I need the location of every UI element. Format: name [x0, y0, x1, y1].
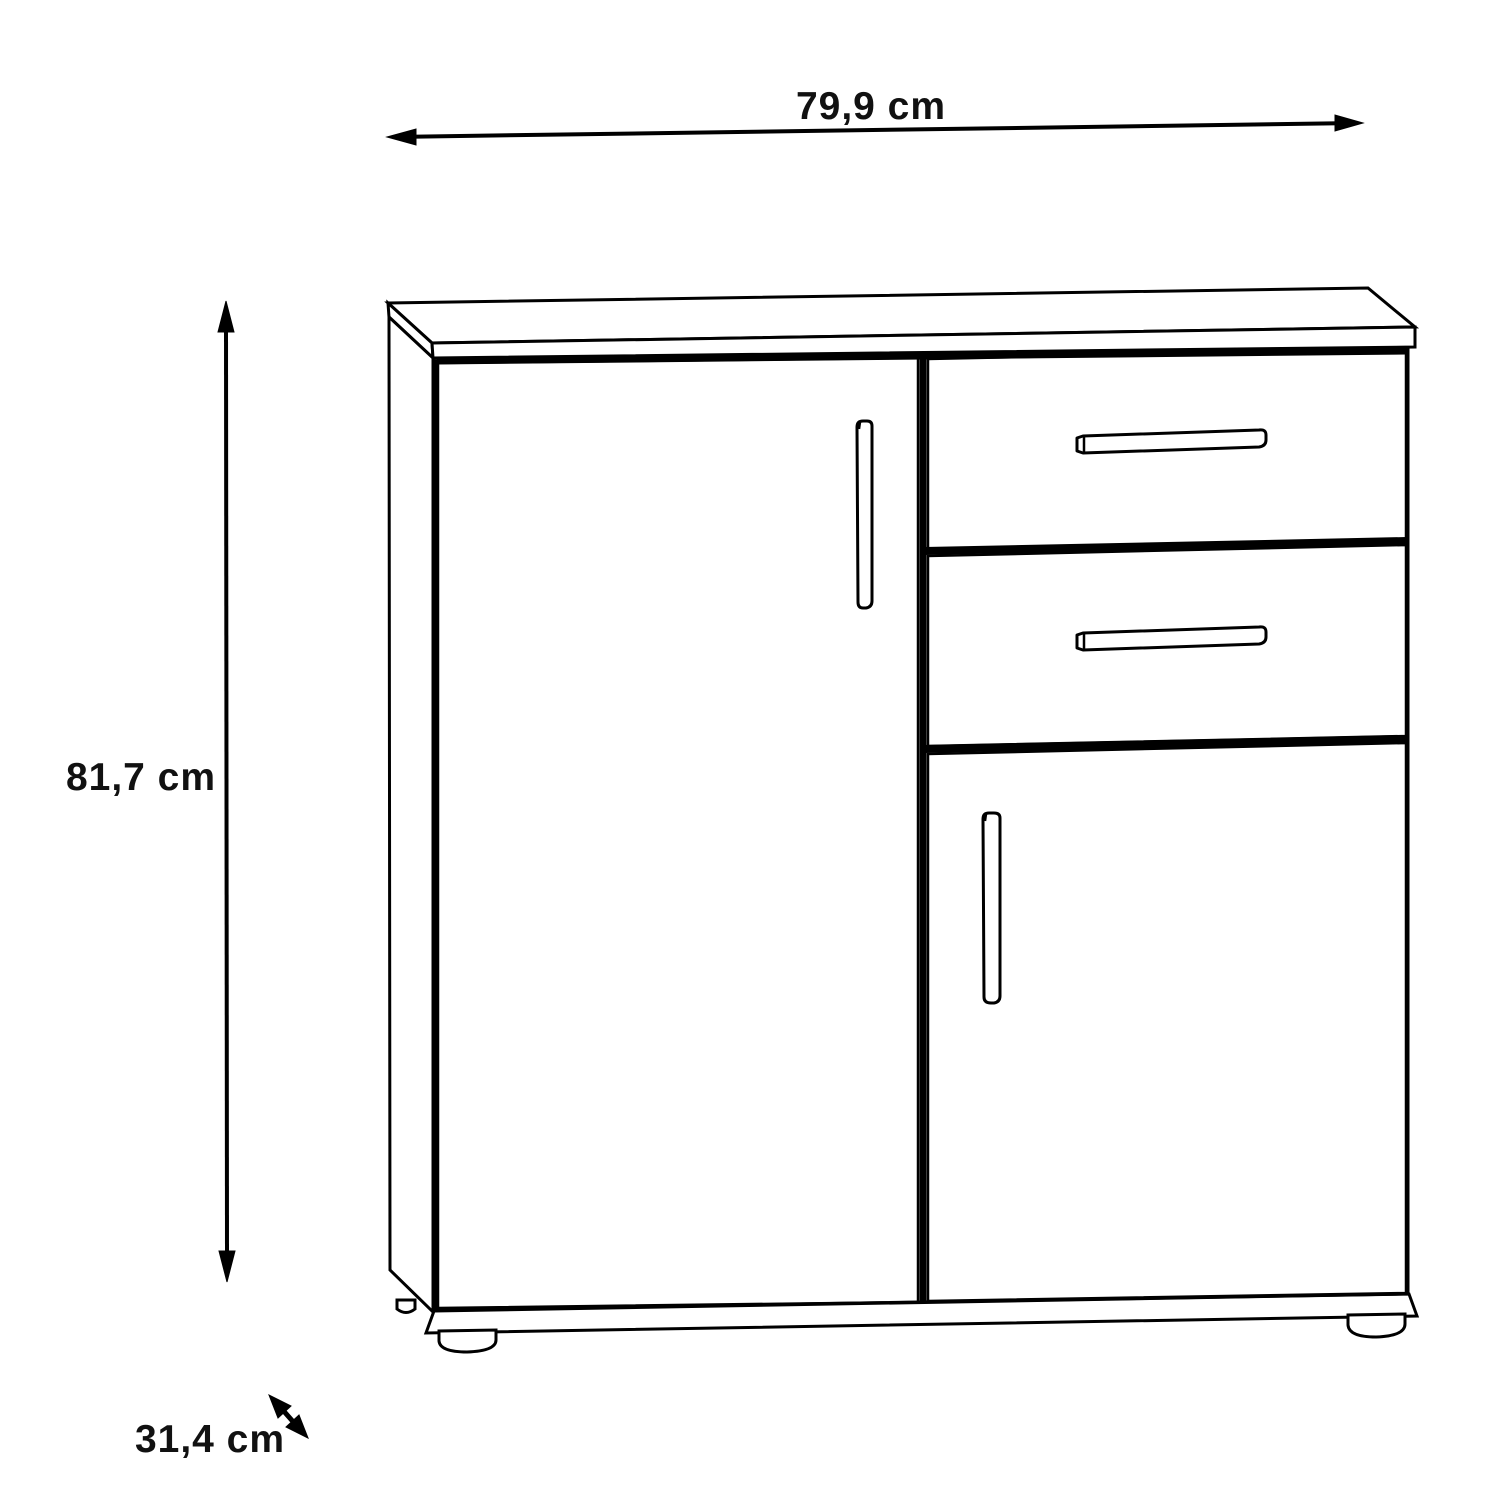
depth-dimension-label: 31,4 cm: [135, 1418, 285, 1461]
height-arrow-line: [226, 325, 227, 1258]
height-arrow: [218, 301, 235, 1282]
depth-dimension: 31,4 cm: [135, 1395, 308, 1461]
furniture-dimension-diagram: 79,9 cm 81,7 cm 31,4 cm: [0, 0, 1500, 1500]
height-arrow-bottom-head-icon: [219, 1251, 235, 1282]
cabinet-top-panel: [388, 288, 1415, 358]
cabinet-left-side-panel: [389, 317, 433, 1312]
width-dimension-label: 79,9 cm: [796, 85, 946, 128]
width-arrow-right-head-icon: [1335, 115, 1363, 131]
left-foot: [439, 1330, 496, 1352]
right-door-handle: [983, 813, 1000, 1003]
width-dimension: 79,9 cm: [387, 85, 1363, 145]
width-arrow-left-head-icon: [387, 129, 416, 145]
height-dimension-label: 81,7 cm: [66, 756, 216, 799]
right-foot: [1348, 1314, 1405, 1337]
dimension-diagram-page: 79,9 cm 81,7 cm 31,4 cm: [0, 0, 1500, 1500]
rear-left-foot: [397, 1300, 415, 1313]
left-door-handle: [857, 421, 872, 608]
height-arrow-top-head-icon: [218, 301, 234, 332]
cabinet-drawing: [388, 288, 1417, 1352]
height-dimension: 81,7 cm: [66, 301, 235, 1282]
left-door-handle-endcap-line: [859, 422, 860, 429]
right-door-handle-endcap-line: [985, 814, 986, 821]
